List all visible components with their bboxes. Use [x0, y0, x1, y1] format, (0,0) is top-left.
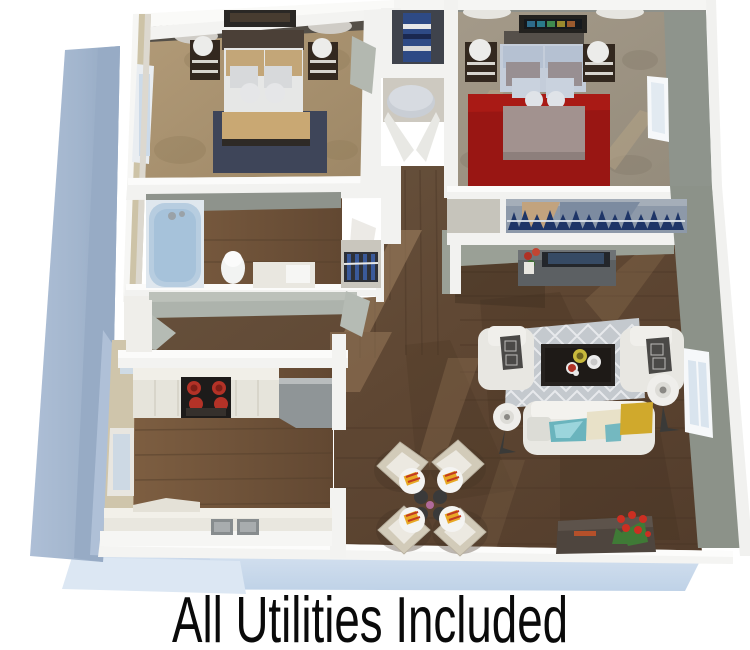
svg-text:All Utilities Included: All Utilities Included	[172, 583, 568, 650]
